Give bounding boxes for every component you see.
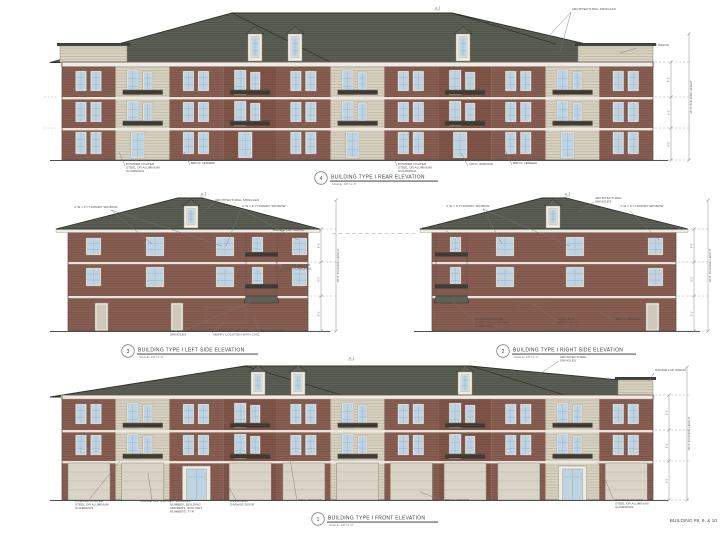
window — [290, 132, 301, 154]
window — [183, 404, 194, 424]
drawing-number: 2 — [502, 349, 505, 355]
building-height-dim: 38'-0" BUILDING HEIGHT — [708, 248, 712, 282]
patio-door — [238, 132, 252, 158]
dummy-window — [86, 238, 101, 255]
cornice-band — [61, 395, 654, 399]
floor-trim-band — [432, 262, 676, 264]
floor-height-dim: 9'-1" — [316, 276, 320, 281]
annotation-text: ARCHITECTURAL SHINGLES — [572, 7, 616, 11]
drawing-label-front: 1BUILDING TYPE I FRONT ELEVATIONSCALE: 1… — [312, 513, 438, 527]
window — [290, 404, 301, 424]
window — [91, 132, 102, 154]
floor-trim-band — [62, 97, 653, 99]
window — [91, 102, 102, 122]
annotation-text: 4' W x 5' H DUMMY WINDOW — [242, 204, 285, 208]
window — [358, 103, 368, 121]
entry — [182, 466, 210, 500]
elevation-sheet-canvas: 129'-1"9'-1"9'-1"38'-0" BUILDING HEIGHTA… — [0, 0, 722, 535]
window — [305, 435, 316, 455]
dormer-window — [294, 375, 302, 392]
annotation-text: HARDIE LAP SIDING — [140, 499, 172, 503]
balcony-railing — [338, 90, 378, 95]
window — [413, 435, 424, 455]
window — [413, 404, 424, 424]
window — [465, 436, 475, 454]
dummy-window — [648, 268, 663, 286]
balcony-railing — [245, 284, 278, 289]
patio-door — [346, 132, 360, 158]
roof-pitch-mark: 12 — [434, 6, 440, 10]
entry-door — [646, 303, 659, 331]
drawing-sheet: 129'-1"9'-1"9'-1"38'-0" BUILDING HEIGHTA… — [0, 0, 722, 535]
dormer-window — [254, 375, 262, 392]
balcony-railing — [123, 454, 163, 459]
dummy-window — [146, 267, 164, 287]
annotation-architectural-shingles: ARCHITECTURALSHINGLES — [538, 355, 587, 375]
window — [358, 405, 368, 423]
window — [250, 405, 260, 423]
window — [143, 72, 153, 90]
annotation-text: VINYL WINDOW — [469, 162, 493, 166]
dormer-window — [459, 37, 467, 58]
floor-height-dim: 9'-1" — [689, 276, 693, 281]
front-elevation: 129'-1"9'-1"9'-1"38'-0" BUILDING HEIGHTA… — [50, 355, 691, 527]
drawing-label-left: 3BUILDING TYPE I LEFT SIDE ELEVATIONSCAL… — [122, 345, 258, 359]
balcony-railing — [338, 454, 378, 459]
window — [398, 435, 409, 455]
facade-wall — [61, 62, 654, 160]
window — [305, 71, 316, 91]
pitch-label: 12 — [201, 193, 204, 196]
window — [573, 436, 583, 454]
annotation-text: BRICK VENEER — [513, 161, 538, 165]
window — [520, 404, 531, 424]
window — [305, 132, 316, 154]
garage-door — [337, 463, 379, 500]
annotation-text: HARDIE LAP SIDING — [422, 226, 454, 230]
window — [628, 132, 639, 154]
dummy-window — [86, 268, 101, 286]
window — [465, 405, 475, 423]
window — [183, 435, 194, 455]
window — [183, 102, 194, 122]
pitch-label: 12 — [565, 193, 568, 196]
dormer-window — [291, 37, 299, 58]
annotation-text: 4' W x 5' H DUMMY WINDOW — [620, 204, 663, 208]
annotation-text: HARDIE LAP SIDING — [273, 228, 305, 232]
window — [520, 435, 531, 455]
window — [613, 102, 624, 122]
annotation-text: BRICK VENEER — [445, 498, 470, 502]
dimension-lines: 9'-1"9'-1"9'-1"38'-0" BUILDING HEIGHT — [655, 365, 691, 501]
roof — [50, 13, 586, 63]
annotation-text: ARCHITECTURALSHINGLES — [595, 196, 622, 204]
window — [465, 103, 475, 121]
window — [520, 102, 531, 122]
drawing-number: 1 — [317, 517, 320, 523]
window — [198, 435, 209, 455]
patio-door — [131, 132, 145, 158]
floor-height-dim: 9'-1" — [666, 141, 670, 146]
balcony-railing — [338, 121, 378, 126]
facade-wall — [68, 229, 308, 331]
dummy-window — [216, 237, 234, 256]
window — [76, 435, 87, 455]
floor-height-dim: 9'-1" — [666, 77, 670, 82]
annotation-text: ARCHITECTURAL SHINGLES — [215, 198, 259, 202]
dormer — [289, 366, 307, 396]
sheet-corner-label: BUILDING #8, 9, & 10 — [670, 518, 718, 524]
rear-elevation: 129'-1"9'-1"9'-1"38'-0" BUILDING HEIGHTA… — [44, 6, 693, 186]
entry-door — [95, 303, 108, 331]
dimension-lines: 9'-1"9'-1"9'-1"38'-0" BUILDING HEIGHT — [655, 32, 693, 161]
window — [613, 404, 624, 424]
annotation-text: ARCHITECTURALSHINGLES — [560, 355, 587, 363]
pitch-label: 12 — [435, 7, 438, 10]
facade-wall — [61, 395, 654, 500]
dummy-window — [566, 237, 584, 256]
dormer-window — [461, 375, 469, 392]
dummy-window — [146, 237, 164, 256]
window — [91, 435, 102, 455]
annotation-text: LIT BUILDINGNUMBER, BUILDINGADDRESS, AND… — [170, 499, 202, 514]
dormer — [182, 200, 200, 229]
floor-height-dim: 9'-1" — [664, 410, 668, 415]
window — [465, 72, 475, 90]
annotation-text: POWDER COATEDSTEEL OR ALUMINUMGUARDRAIL — [126, 162, 160, 173]
dummy-window — [566, 267, 584, 287]
window — [143, 405, 153, 423]
garage-door — [498, 463, 540, 500]
drawing-number: 3 — [127, 349, 130, 355]
window — [290, 435, 301, 455]
window — [505, 102, 516, 122]
balcony-railing — [230, 423, 270, 428]
balcony-railing — [230, 90, 270, 95]
roof-pitch-mark: 12 — [564, 192, 570, 196]
garage-door — [444, 463, 486, 500]
balcony-railing — [245, 252, 278, 257]
annotation-text: 4' W x 5' H DUMMY WINDOW — [446, 204, 489, 208]
balcony-railing — [230, 121, 270, 126]
roof-pitch-mark: 12 — [348, 356, 354, 360]
window — [143, 436, 153, 454]
window — [520, 71, 531, 91]
annotation-text: BRICK VENEER — [616, 317, 641, 321]
annotation-text: ARCHITECTURALSHINGLES — [170, 329, 197, 337]
scale-note: SCALE: 1/8"=1'-0" — [514, 355, 538, 359]
window — [76, 71, 87, 91]
garage-door — [605, 463, 647, 500]
window — [573, 72, 583, 90]
annotation-text: VINYL WINDOW — [298, 498, 322, 502]
scale-note: SCALE: 1/8"=1'-0" — [139, 355, 163, 359]
window — [628, 71, 639, 91]
balcony-railing — [435, 284, 468, 289]
window — [305, 102, 316, 122]
window — [573, 405, 583, 423]
right-elevation: 129'-1"9'-1"9'-1"38'-0" BUILDING HEIGHT4… — [414, 192, 712, 359]
window — [358, 436, 368, 454]
annotation-text: HARDIE LAP SIDING — [638, 43, 670, 47]
drawing-label-rear: 4BUILDING TYPE I REAR ELEVATIONSCALE: 1/… — [315, 172, 438, 186]
entry — [559, 466, 587, 500]
annotation-text: POWDER COATEDSTEEL GUARDRAIL — [282, 263, 312, 271]
annotation-text: BRICK VENEER — [191, 161, 216, 165]
dormer — [286, 27, 304, 62]
building-height-dim: 38'-0" BUILDING HEIGHT — [687, 416, 691, 450]
balcony-railing — [445, 423, 485, 428]
dummy-window — [496, 267, 514, 287]
garage-door — [122, 463, 164, 500]
dummy-window — [216, 267, 234, 287]
entry-door — [171, 303, 183, 331]
window — [198, 404, 209, 424]
dummy-window — [292, 268, 307, 286]
balcony-railing — [553, 121, 593, 126]
window — [573, 103, 583, 121]
window — [413, 71, 424, 91]
window — [290, 71, 301, 91]
eave-fascia — [420, 229, 688, 233]
window — [398, 71, 409, 91]
window — [398, 132, 409, 154]
floor-height-dim: 9'-1" — [664, 478, 668, 483]
drawing-title: BUILDING TYPE I REAR ELEVATION — [331, 175, 425, 181]
building-height-dim: 38'-0" BUILDING HEIGHT — [336, 248, 340, 282]
window — [413, 102, 424, 122]
floor-height-dim: 9'-1" — [689, 243, 693, 248]
annotation-text: BRICK VENEER — [260, 329, 285, 333]
dormer-window — [187, 209, 195, 225]
dormer-window — [549, 209, 557, 225]
window — [250, 103, 260, 121]
balcony-railing — [445, 454, 485, 459]
window — [520, 132, 531, 154]
balcony-railing — [230, 454, 270, 459]
floor-height-dim: 9'-1" — [316, 311, 320, 316]
window — [198, 102, 209, 122]
window — [628, 404, 639, 424]
patio-roof — [434, 296, 469, 303]
window — [183, 132, 194, 154]
annotation-text: 4' W x 5' H DUMMY WINDOW — [74, 205, 117, 209]
window — [358, 72, 368, 90]
drawing-number: 4 — [320, 176, 323, 182]
floor-trim-band — [68, 262, 308, 264]
pitch-label: 12 — [349, 357, 352, 360]
window — [305, 404, 316, 424]
window — [505, 132, 516, 154]
window — [505, 71, 516, 91]
patio-door — [453, 132, 467, 158]
balcony-railing — [435, 252, 468, 257]
dummy-window — [496, 237, 514, 256]
garage-door — [283, 463, 325, 500]
window — [628, 102, 639, 122]
window — [290, 102, 301, 122]
dimension-lines: 9'-1"9'-1"9'-1"38'-0" BUILDING HEIGHT — [678, 198, 712, 332]
patio-door — [561, 132, 575, 158]
balcony-railing — [123, 90, 163, 95]
floor-trim-band — [432, 296, 676, 298]
window — [613, 71, 624, 91]
window — [413, 132, 424, 154]
balcony-railing — [553, 454, 593, 459]
window — [91, 404, 102, 424]
window — [250, 436, 260, 454]
floor-height-dim: 9'-1" — [316, 243, 320, 248]
floor-height-dim: 9'-1" — [664, 443, 668, 448]
window — [628, 435, 639, 455]
window — [91, 71, 102, 91]
dormer-window — [251, 37, 259, 58]
cornice-band — [61, 62, 654, 67]
floor-trim-band — [62, 128, 653, 130]
balcony-railing — [123, 423, 163, 428]
floor-height-dim: 9'-1" — [689, 311, 693, 316]
balcony-railing — [445, 90, 485, 95]
window — [505, 435, 516, 455]
dormer — [456, 366, 474, 396]
facade-wall — [432, 229, 676, 331]
window — [613, 132, 624, 154]
dormer — [544, 200, 562, 229]
window — [143, 103, 153, 121]
drawing-title: BUILDING TYPE I FRONT ELEVATION — [328, 516, 425, 522]
drawing-title: BUILDING TYPE I RIGHT SIDE ELEVATION — [513, 348, 623, 354]
dormer — [246, 27, 264, 62]
drawing-title: BUILDING TYPE I LEFT SIDE ELEVATION — [138, 348, 245, 354]
dummy-window — [648, 238, 663, 255]
window — [198, 71, 209, 91]
dummy-window — [292, 238, 307, 255]
window — [76, 132, 87, 154]
window — [398, 404, 409, 424]
roof — [50, 366, 620, 397]
floor-trim-band — [62, 430, 653, 432]
garage-door — [229, 463, 271, 500]
balcony-railing — [338, 423, 378, 428]
balcony-railing — [445, 121, 485, 126]
scale-note: SCALE: 1/8"=1'-0" — [332, 182, 356, 186]
balcony-railing — [553, 423, 593, 428]
annotation-text: POWDER COATEDSTEEL OR ALUMINUMGUARDRAIL — [398, 162, 432, 173]
window — [250, 72, 260, 90]
scale-note: SCALE: 1/8"=1'-0" — [329, 523, 353, 527]
dormer — [249, 366, 267, 396]
left-elevation: 129'-1"9'-1"9'-1"38'-0" BUILDING HEIGHT4… — [50, 192, 340, 359]
patio-roof — [244, 296, 279, 303]
roof-pitch-mark: 12 — [200, 192, 206, 196]
window — [613, 435, 624, 455]
annotation-text: HARDIE LAP SIDING — [655, 368, 687, 372]
balcony-railing — [553, 90, 593, 95]
window — [398, 102, 409, 122]
building-height-dim: 38'-0" BUILDING HEIGHT — [689, 80, 693, 114]
window — [198, 132, 209, 154]
window — [505, 404, 516, 424]
window — [76, 102, 87, 122]
dimension-lines: 9'-1"9'-1"9'-1"38'-0" BUILDING HEIGHT — [310, 198, 340, 332]
balcony-railing — [123, 121, 163, 126]
window — [183, 71, 194, 91]
dormer — [454, 27, 472, 62]
window — [76, 404, 87, 424]
floor-height-dim: 9'-1" — [666, 110, 670, 115]
